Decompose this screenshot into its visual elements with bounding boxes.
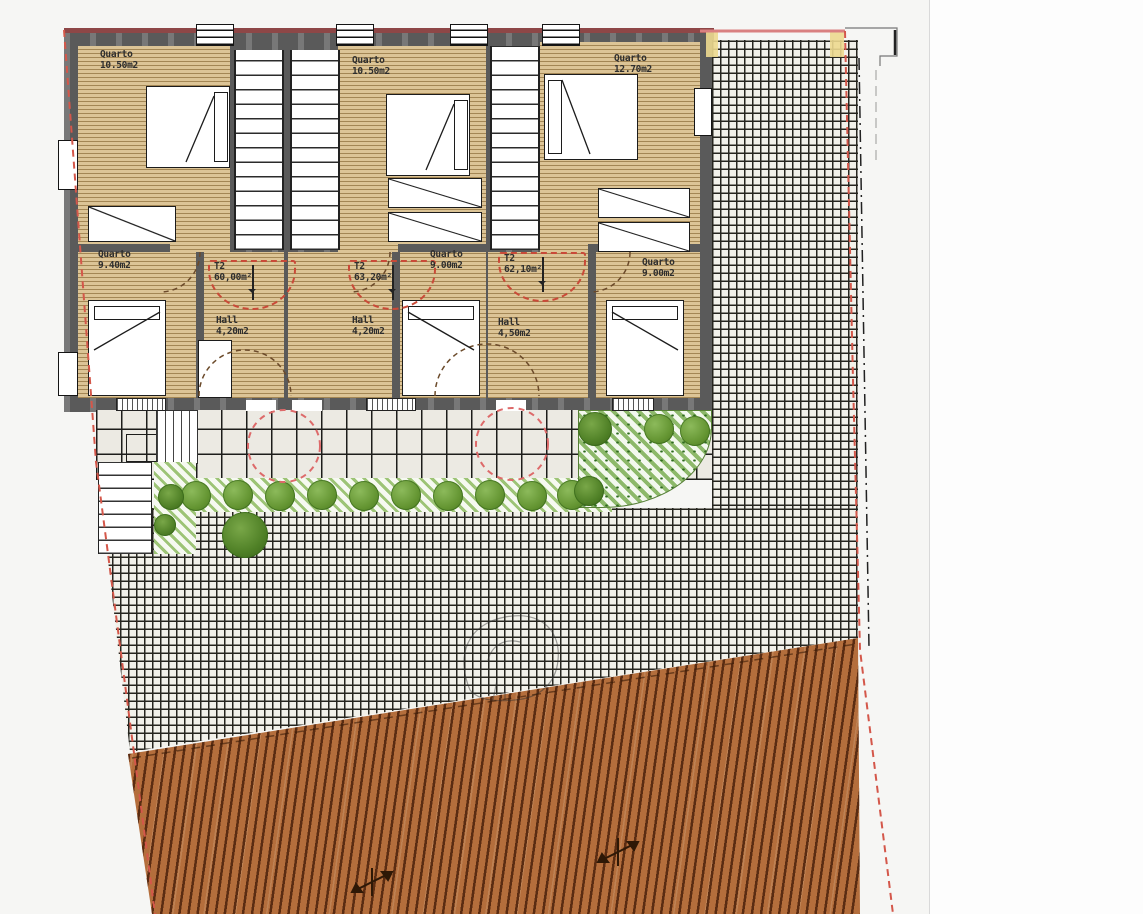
window <box>116 398 166 411</box>
bush-icon <box>307 480 337 510</box>
bush-icon <box>181 481 211 511</box>
wardrobe <box>598 188 690 218</box>
window <box>450 24 488 46</box>
window <box>58 140 78 190</box>
bush-icon <box>158 484 184 510</box>
unit-area: 63,20m² <box>354 273 392 284</box>
bush-icon <box>475 480 505 510</box>
room-label: Quarto 9.40m2 <box>98 250 131 271</box>
unit-type-label: T2 63,20m² <box>354 262 392 283</box>
partition-wall <box>588 252 596 398</box>
hall-area: 4,20m2 <box>352 327 385 338</box>
bush-icon <box>222 512 268 558</box>
bush-icon <box>680 416 710 446</box>
window <box>196 24 234 46</box>
bed-pillow <box>408 306 474 320</box>
room-area: 10.50m2 <box>100 61 138 72</box>
bed-pillow <box>612 306 678 320</box>
room-label: Quarto 12.70m2 <box>614 54 652 75</box>
bed-pillow <box>214 92 228 162</box>
door-opening <box>292 400 322 411</box>
bush-icon <box>349 481 379 511</box>
unit-type-label: T2 60,00m² <box>214 262 252 283</box>
room-label: Quarto 9.00m2 <box>430 250 463 271</box>
hall-area: 4,20m2 <box>216 327 249 338</box>
bed-pillow <box>548 80 562 154</box>
bush-icon <box>223 480 253 510</box>
window <box>336 24 374 46</box>
room-area: 9.00m2 <box>642 269 675 280</box>
marker-yellow <box>830 31 844 57</box>
door-opening <box>246 400 276 411</box>
room-label: Quarto 10.50m2 <box>352 56 390 77</box>
property-dashdot-line <box>859 58 869 648</box>
bush-icon <box>578 412 612 446</box>
bush-icon <box>644 414 674 444</box>
bed-pillow <box>94 306 160 320</box>
room-area: 10.50m2 <box>352 67 390 78</box>
bed-pillow <box>454 100 468 170</box>
window <box>694 88 712 136</box>
unit-area: 62,10m² <box>504 265 542 276</box>
room-area: 9.40m2 <box>98 261 131 272</box>
staircase-unit-3 <box>490 46 540 250</box>
porch-deck <box>156 410 198 464</box>
page-margin-strip <box>929 0 1143 914</box>
bush-icon <box>154 514 176 536</box>
hall-label: Hall 4,20m2 <box>216 316 249 337</box>
window <box>542 24 580 46</box>
window <box>366 398 416 411</box>
unit-type-label: T2 62,10m² <box>504 254 542 275</box>
hall-area: 4,50m2 <box>498 329 531 340</box>
bush-icon <box>265 481 295 511</box>
door-opening <box>496 400 526 411</box>
wardrobe <box>388 178 482 208</box>
room-area: 12.70m2 <box>614 65 652 76</box>
marker-yellow <box>706 31 718 57</box>
facade-top-line <box>64 28 714 33</box>
wardrobe <box>388 212 482 242</box>
bush-icon <box>517 481 547 511</box>
room-label: Quarto 10.50m2 <box>100 50 138 71</box>
paving-grid-right-strip <box>712 40 858 514</box>
window <box>58 352 78 396</box>
staircase-unit-1 <box>234 50 284 250</box>
wardrobe <box>88 206 176 242</box>
room-area: 9.00m2 <box>430 261 463 272</box>
room-label: Quarto 9.00m2 <box>642 258 675 279</box>
hall-label: Hall 4,20m2 <box>352 316 385 337</box>
bush-icon <box>574 476 604 506</box>
closet <box>198 340 232 398</box>
staircase-unit-2 <box>290 50 340 250</box>
window <box>612 398 654 411</box>
outdoor-steps <box>98 462 152 554</box>
unit-area: 60,00m² <box>214 273 252 284</box>
bush-icon <box>433 481 463 511</box>
wardrobe <box>598 222 690 252</box>
floor-plan-canvas: Quarto 10.50m2 Quarto 10.50m2 Quarto 12.… <box>0 0 1143 914</box>
bush-icon <box>391 480 421 510</box>
hall-label: Hall 4,50m2 <box>498 318 531 339</box>
